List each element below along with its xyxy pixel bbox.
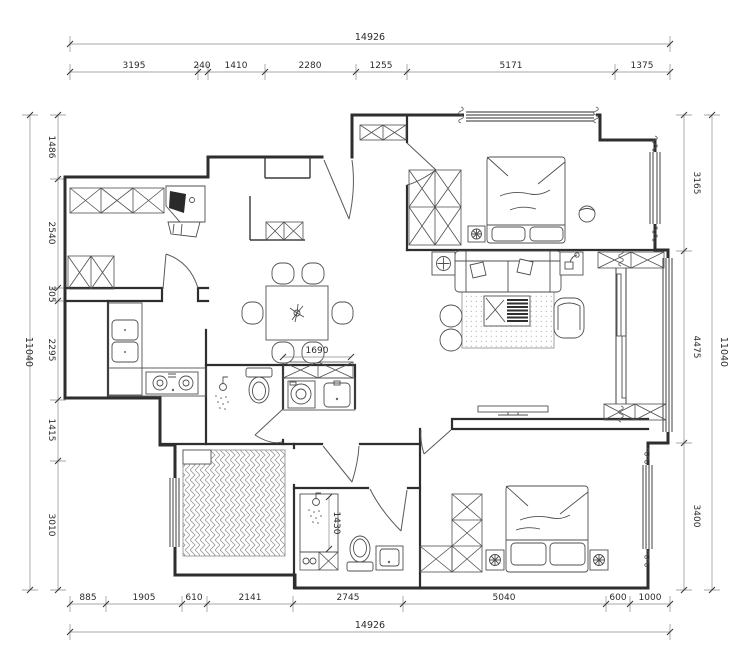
dim-label: 1410: [225, 61, 248, 71]
entry-hall: [266, 125, 406, 240]
laundry-sink: [324, 381, 350, 407]
dim-label: 610: [185, 593, 202, 603]
dim-label: 305: [46, 285, 56, 302]
dim-label: 1905: [133, 593, 156, 603]
dimension-left-segments: 1486 2540 305 2295 1415 3010: [46, 112, 66, 593]
dimension-left-overall: 11040: [22, 112, 38, 593]
pillow: [492, 227, 525, 241]
dim-label: 600: [609, 593, 626, 603]
dim-label: 11040: [23, 337, 34, 367]
window-balcony-east: [662, 258, 674, 432]
herringbone-floor: [183, 450, 285, 556]
dim-label: 2745: [337, 593, 360, 603]
dim-label: 2280: [299, 61, 322, 71]
storage-cabinet: [598, 252, 664, 268]
pouf: [440, 329, 462, 351]
bathroom-sink: [376, 546, 403, 570]
door-bedroom2: [421, 430, 451, 454]
dimension-top-overall: 14926: [67, 32, 673, 52]
sofa: [455, 251, 561, 292]
side-table-decor: [560, 252, 583, 275]
floor-plan-page: 14926 3195 240 1410 2280 1255 5171 1375 …: [0, 0, 740, 654]
round-stool: [579, 206, 595, 222]
nightstand: [590, 550, 608, 570]
pillow: [530, 227, 563, 241]
living-room: [432, 251, 584, 415]
storage-cabinet: [604, 404, 666, 420]
dining-chair: [272, 263, 294, 284]
sofa-pillow: [470, 262, 486, 278]
toilet: [246, 368, 272, 403]
dim-label: 3400: [691, 505, 701, 528]
tv: [478, 406, 548, 415]
door-corridor: [323, 446, 359, 482]
bathroom-2: 1430: [300, 493, 403, 571]
dimension-shower: 1430: [326, 494, 341, 552]
dimension-top-segments: 3195 240 1410 2280 1255 5171 1375: [67, 61, 673, 80]
kitchen: [108, 303, 206, 396]
wardrobe-cabinet: [70, 188, 164, 213]
door-bath2: [370, 489, 407, 531]
wardrobe-cabinet: [452, 494, 482, 572]
window-bedroom1-east: [649, 136, 661, 242]
armchair: [554, 298, 584, 338]
pouf: [440, 305, 462, 327]
balcony-sliding-door: [616, 250, 626, 422]
dim-label: 1000: [639, 593, 662, 603]
dim-label: 14926: [355, 620, 385, 631]
shower-cabinet: [300, 552, 338, 570]
dim-label: 885: [79, 593, 96, 603]
dining-chair: [332, 302, 353, 324]
bed: [487, 157, 565, 243]
wardrobe-cabinet: [420, 546, 452, 572]
dim-label: 3010: [46, 514, 56, 537]
dim-label: 1375: [631, 61, 654, 71]
floor-cabinet: [183, 450, 211, 464]
dining-chair: [242, 302, 263, 324]
dim-label: 240: [193, 61, 210, 71]
nightstand: [468, 226, 485, 242]
window-tatami-room-west: [169, 478, 181, 547]
wardrobe-cabinet: [68, 256, 114, 289]
dimension-bottom-segments: 885 1905 610 2141 2745 5040 600 1000: [67, 593, 673, 612]
dim-label: 2141: [239, 593, 262, 603]
pillow: [550, 543, 585, 565]
pillow: [511, 543, 546, 565]
bedroom-2: [420, 486, 608, 572]
dimension-right-segments: 3165 4475 3400: [676, 112, 701, 593]
dim-label: 1255: [370, 61, 393, 71]
floor-plan-canvas: 14926 3195 240 1410 2280 1255 5171 1375 …: [0, 0, 740, 654]
sofa-pillow: [517, 259, 533, 275]
dim-label: 11040: [718, 337, 729, 367]
dim-label: 1430: [331, 512, 341, 535]
door-cloakroom: [163, 254, 198, 289]
door-bath1: [255, 409, 283, 443]
gas-stove: [146, 372, 198, 394]
washing-machine: [288, 381, 315, 408]
coffee-table: [484, 296, 530, 326]
balcony: [598, 252, 666, 420]
bedroom-1: [409, 157, 595, 245]
dim-label: 3195: [123, 61, 146, 71]
cloakroom: [68, 186, 205, 289]
entry-cabinet: [360, 125, 406, 140]
window-bedroom1-north: [459, 107, 599, 123]
side-table-lamp: [432, 252, 455, 275]
dining-chair: [272, 342, 294, 363]
door-bedroom1: [407, 143, 436, 185]
bed: [506, 486, 588, 572]
wardrobe-cabinet: [409, 170, 461, 245]
tatami-room: [183, 450, 285, 556]
dimension-bottom-overall: 14926: [67, 620, 673, 640]
corner-desk: [166, 186, 205, 237]
dining-area: [242, 263, 353, 363]
dim-label: 2540: [46, 222, 56, 245]
laundry-nook: [283, 362, 355, 410]
shower-head-icon: [308, 493, 322, 524]
dim-label: 14926: [355, 32, 385, 43]
dim-label: 3165: [691, 172, 701, 195]
dim-label: 5040: [493, 593, 516, 603]
nightstand: [486, 550, 504, 570]
toilet: [347, 536, 373, 571]
door-entry: [324, 160, 353, 219]
dim-label: 5171: [500, 61, 523, 71]
bathroom-1: [215, 368, 272, 410]
shoe-cabinet: [266, 222, 303, 240]
dimension-right-overall: 11040: [704, 112, 729, 593]
dim-label: 2295: [46, 339, 56, 362]
dim-label: 1486: [46, 136, 56, 159]
dim-label: 1415: [46, 419, 56, 442]
dining-chair: [302, 263, 324, 284]
dim-label: 1690: [306, 346, 329, 356]
dim-label: 4475: [691, 336, 701, 359]
shower-head-icon: [215, 377, 229, 410]
